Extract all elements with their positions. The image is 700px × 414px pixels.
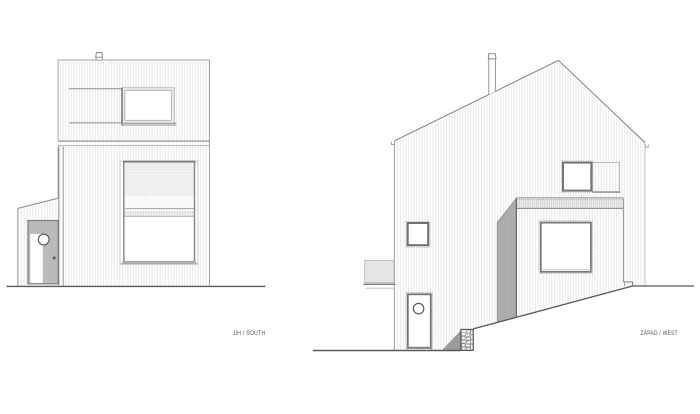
svg-text:JIH / SOUTH: JIH / SOUTH: [233, 330, 266, 337]
svg-text:ZÁPAD / WEST: ZÁPAD / WEST: [641, 328, 678, 337]
